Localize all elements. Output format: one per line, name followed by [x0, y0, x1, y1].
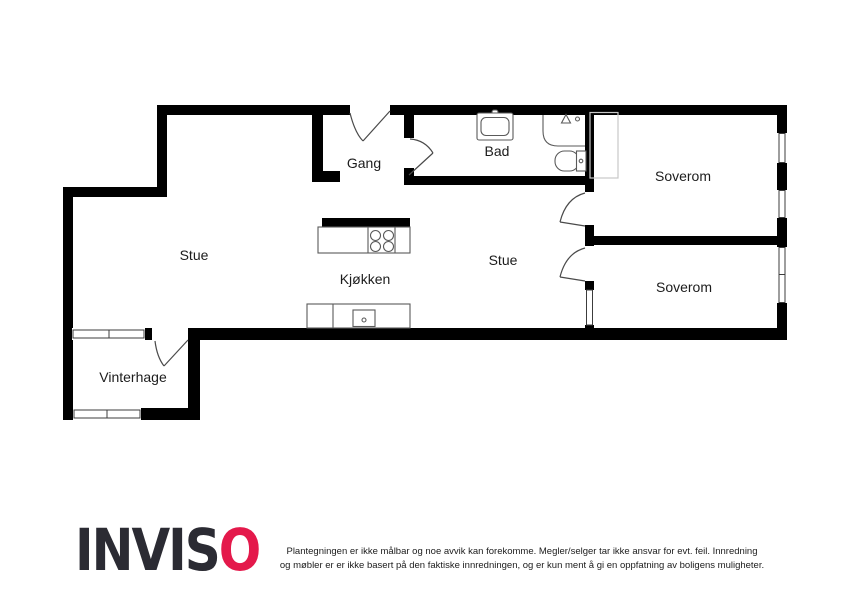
toilet-icon	[555, 151, 586, 171]
disclaimer-line-2: og møbler er er ikke basert på den fakti…	[280, 560, 764, 571]
door-bedroom-bottom	[560, 248, 585, 281]
disclaimer-text: Plantegningen er ikke målbar og noe avvi…	[272, 545, 772, 572]
door-bedroom-top	[560, 193, 585, 226]
door-entrance	[350, 111, 390, 141]
walls	[63, 105, 787, 420]
floorplan-page: Stue Gang Bad Soverom Stue Kjøkken Sover…	[0, 0, 849, 600]
room-label-kjokken: Kjøkken	[340, 271, 391, 287]
door-vinterhage	[155, 340, 188, 366]
bathroom-fixtures	[477, 110, 586, 171]
inviso-logo: INVISO	[75, 523, 259, 578]
room-label-stue-right: Stue	[489, 252, 518, 268]
room-label-gang: Gang	[347, 155, 381, 171]
room-label-soverom-top: Soverom	[655, 168, 711, 184]
room-label-soverom-bottom: Soverom	[656, 279, 712, 295]
inviso-logo-accent: O	[219, 517, 260, 584]
floorplan-drawing	[0, 0, 849, 600]
wardrobe-icon	[590, 113, 618, 179]
kitchen-counter	[307, 304, 410, 328]
shower-icon	[543, 115, 585, 147]
disclaimer-line-1: Plantegningen er ikke målbar og noe avvi…	[286, 546, 757, 557]
room-label-vinterhage: Vinterhage	[99, 369, 166, 385]
room-label-bad: Bad	[485, 143, 510, 159]
stove-icon	[318, 227, 410, 253]
washbasin-icon	[477, 110, 513, 140]
inviso-logo-dark: INVIS	[75, 517, 219, 584]
room-label-stue-left: Stue	[180, 247, 209, 263]
